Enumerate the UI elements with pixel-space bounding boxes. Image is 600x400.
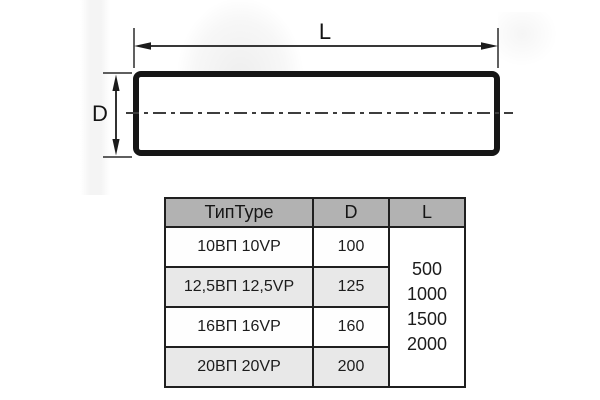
l-value: 2000 — [390, 332, 464, 357]
duct-spec-table: ТипType D L 10ВП 10VP 100 500 1000 1500 … — [164, 197, 466, 388]
d-cell: 100 — [313, 227, 389, 267]
col-header-d: D — [313, 198, 389, 227]
l-merged-cell: 500 1000 1500 2000 — [389, 227, 465, 387]
col-header-l: L — [389, 198, 465, 227]
type-cell: 20ВП 20VP — [165, 347, 313, 387]
col-header-type: ТипType — [165, 198, 313, 227]
d-arrowhead-up — [112, 75, 119, 92]
type-cell: 12,5ВП 12,5VP — [165, 267, 313, 307]
diameter-dimension-label: D — [87, 103, 113, 125]
table-header-row: ТипType D L — [165, 198, 465, 227]
type-cell: 10ВП 10VP — [165, 227, 313, 267]
l-value: 500 — [390, 257, 464, 282]
type-cell: 16ВП 16VP — [165, 307, 313, 347]
d-cell: 160 — [313, 307, 389, 347]
length-dimension-label: L — [312, 21, 338, 43]
d-cell: 125 — [313, 267, 389, 307]
product-spec-figure: L D ТипType D L 10ВП 10VP 100 500 1000 1… — [0, 0, 600, 400]
l-arrowhead-left — [134, 42, 151, 50]
l-value: 1500 — [390, 307, 464, 332]
l-arrowhead-right — [481, 42, 498, 50]
d-arrowhead-down — [112, 139, 119, 156]
l-value: 1000 — [390, 282, 464, 307]
d-cell: 200 — [313, 347, 389, 387]
table-row: 10ВП 10VP 100 500 1000 1500 2000 — [165, 227, 465, 267]
